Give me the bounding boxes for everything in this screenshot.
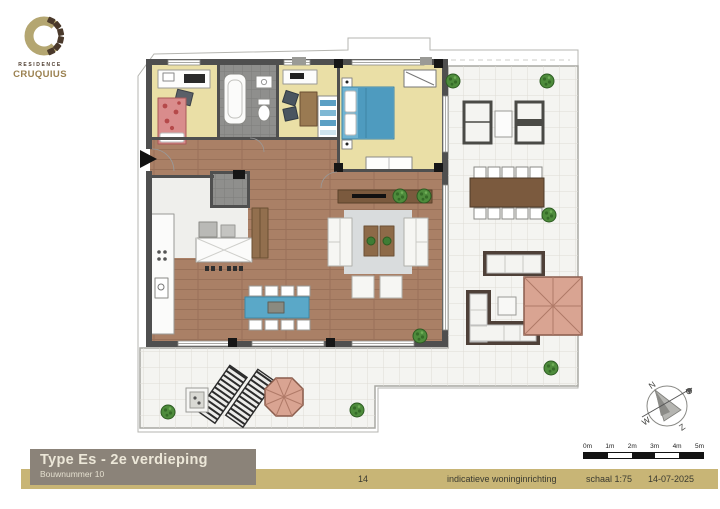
scale-bar-labels: 0m 1m 2m 3m 4m 5m [583,443,704,450]
plant-icon [393,189,407,203]
footer-date: 14-07-2025 [648,474,694,484]
plant-icon [417,189,431,203]
page-number: 14 [358,474,368,484]
scale-label: 5m [695,443,704,450]
plan-subtitle: Bouwnummer 10 [40,469,256,479]
dining-set [245,286,310,330]
wall-vent [420,57,432,65]
armchair [352,276,374,298]
floorplan-sheet: { "logo": { "residence": "RESIDENCE", "b… [0,0,720,509]
square-parasol [524,277,582,335]
armchair [380,276,402,298]
scale-bar-segments [583,452,704,459]
footer-note: indicatieve woninginrichting [447,474,557,484]
washbasin [256,76,272,88]
wall-vent [292,57,306,65]
scale-label: 1m [605,443,614,450]
scale-label: 4m [673,443,682,450]
compass-rose-icon: N O Z W [640,379,695,432]
wardrobe-closet [318,96,338,138]
compass-south-label: Z [677,421,687,432]
compass-east-label: O [683,385,694,397]
footer-scale: schaal 1:75 [586,474,632,484]
scale-bar: 0m 1m 2m 3m 4m 5m [583,443,704,459]
wardrobe [404,70,436,87]
double-bed [342,87,394,139]
terrace-side-table [186,388,208,412]
floor-plan: N O Z W [0,0,720,445]
study-cabinet [300,92,317,126]
scale-label: 2m [628,443,637,450]
kitchen-counter [150,214,174,334]
octagon-parasol [265,378,303,416]
scale-label: 0m [583,443,592,450]
title-block: Type Es - 2e verdieping Bouwnummer 10 [30,449,256,485]
plan-title: Type Es - 2e verdieping [40,452,256,468]
bathtub [224,74,246,124]
toilet-bathroom [258,105,270,121]
outdoor-dining-set [470,167,544,219]
scale-label: 3m [650,443,659,450]
